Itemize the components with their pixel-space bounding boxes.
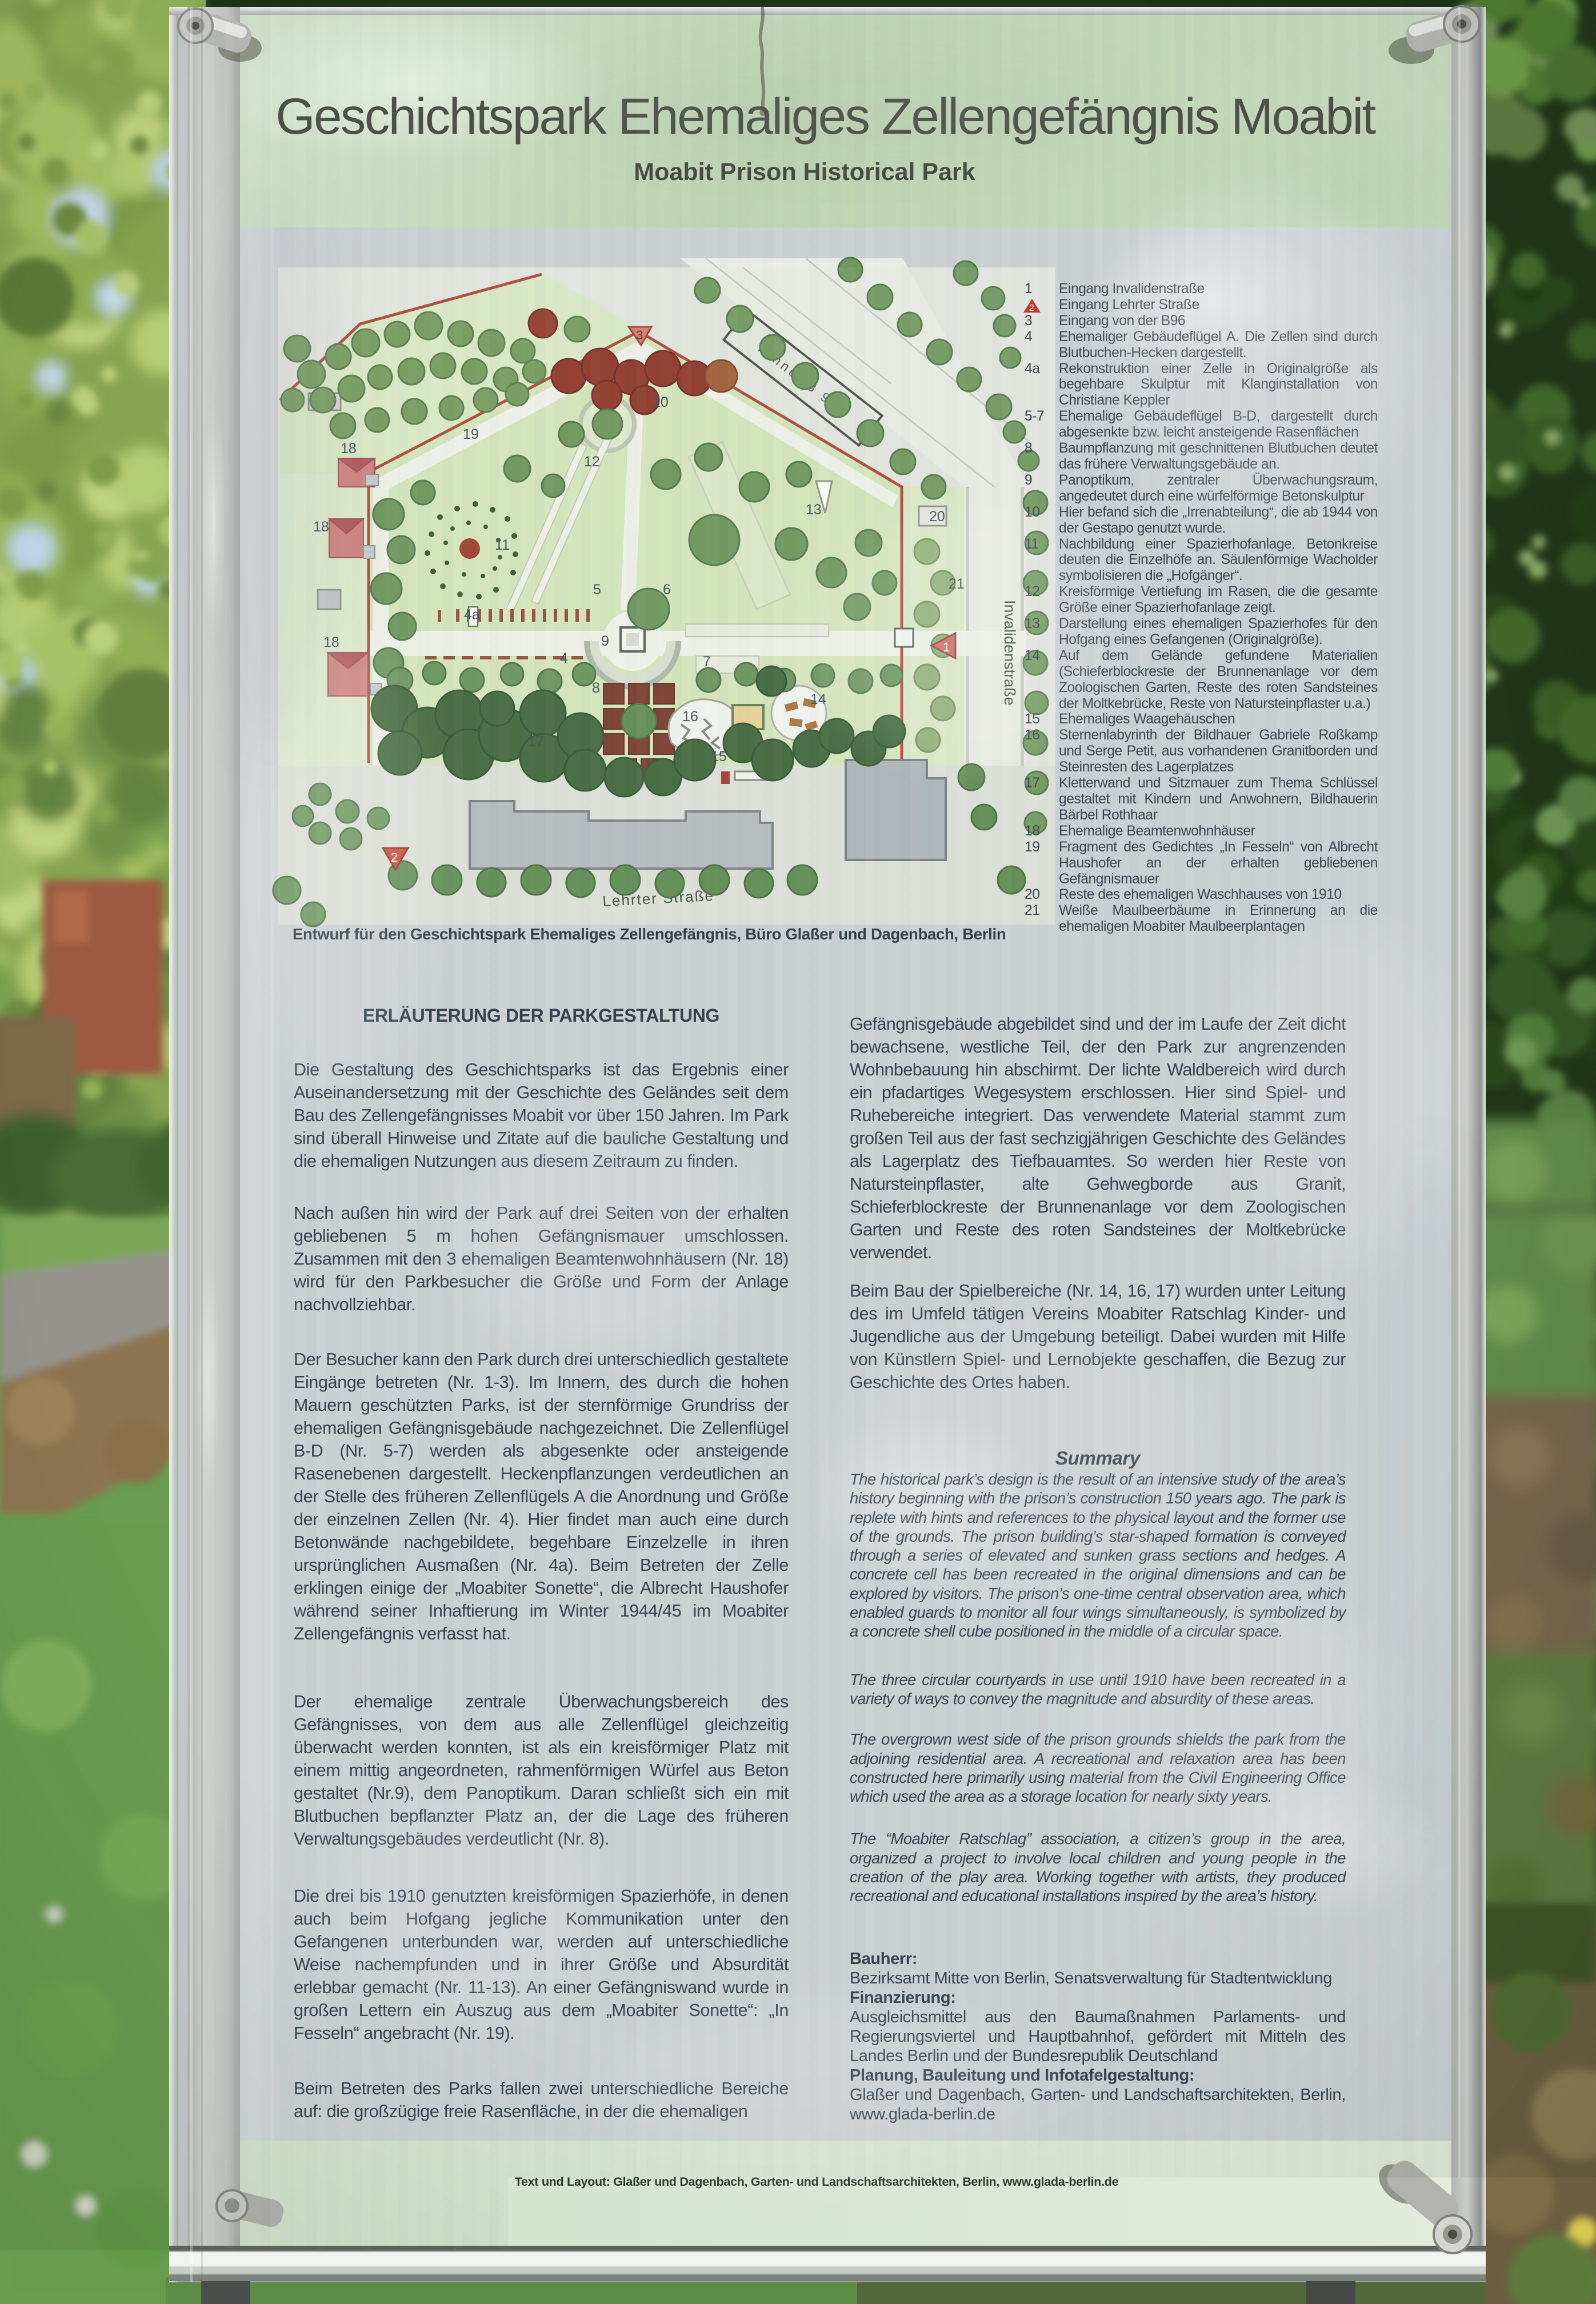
svg-text:2: 2 <box>1029 303 1034 313</box>
